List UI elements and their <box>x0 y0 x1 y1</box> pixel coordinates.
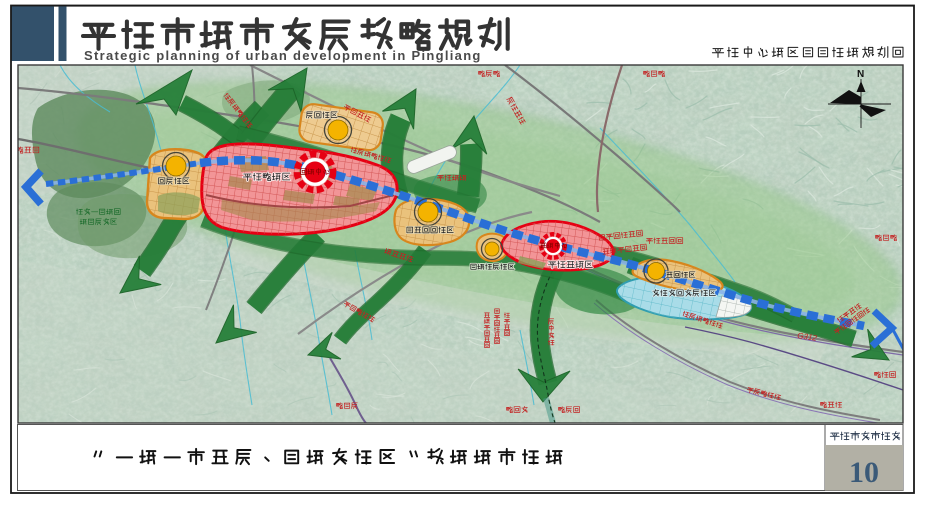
svg-text:10: 10 <box>849 456 879 489</box>
svg-text:N: N <box>857 69 864 80</box>
svg-text:Strategic planning of urban de: Strategic planning of urban development … <box>84 48 482 63</box>
